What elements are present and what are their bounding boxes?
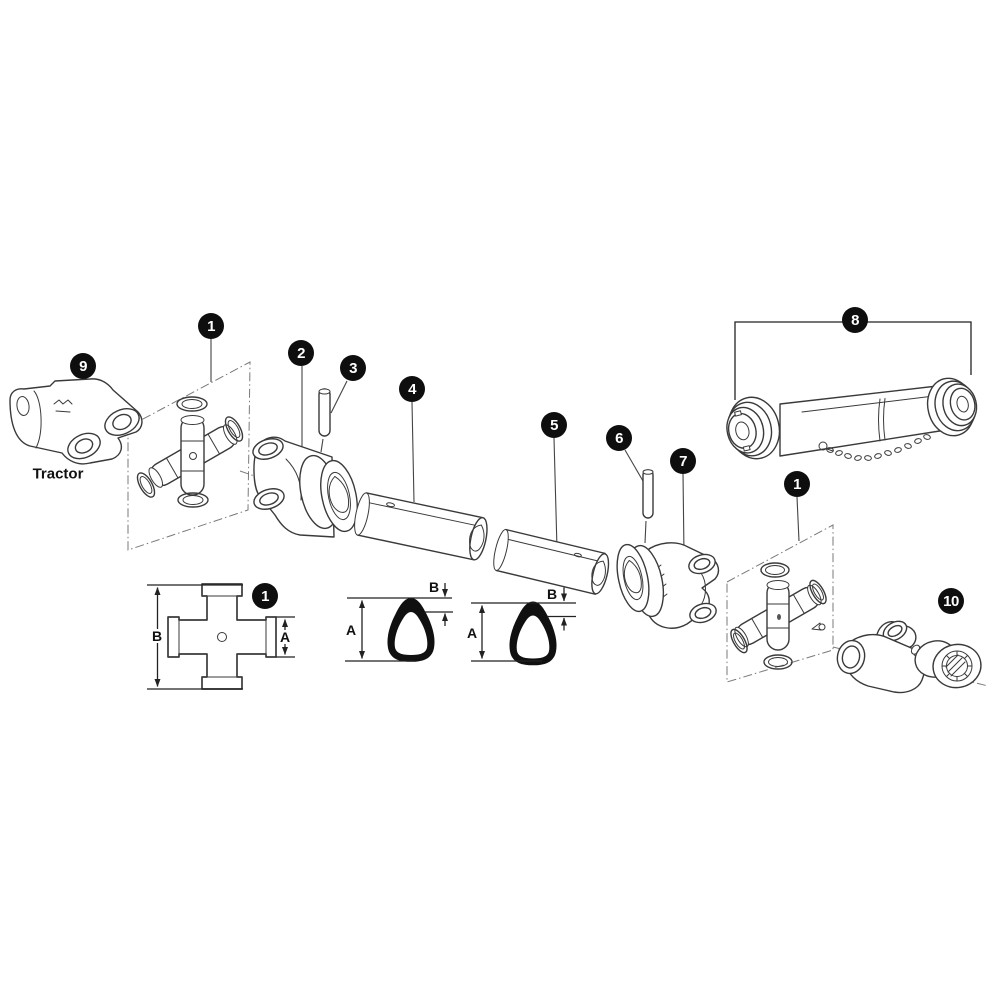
dim-label-cross-cup: A: [278, 630, 292, 644]
diagram-line-art: [0, 0, 1000, 1000]
dim-label-section2-wall: B: [545, 587, 559, 601]
callout-1-left-badge: 1: [198, 313, 224, 339]
guard-assembly-part8: [720, 322, 982, 465]
callout-3-badge: 3: [340, 355, 366, 381]
roll-pin-part3: [319, 389, 330, 436]
u-joint-kit-right-part1: [728, 563, 830, 669]
tractor-label: Tractor: [33, 467, 84, 482]
roll-pin-part6: [643, 470, 653, 518]
dim-label-cross-height: B: [150, 629, 164, 643]
callout-4-badge: 4: [399, 376, 425, 402]
callout-10-badge: 10: [938, 588, 964, 614]
outer-tube-part4: [352, 492, 491, 562]
callout-8-badge: 8: [842, 307, 868, 333]
tube-section-inner: [471, 588, 576, 666]
callout-1-cross-badge: 1: [252, 583, 278, 609]
callout-9-badge: 9: [70, 353, 96, 379]
callout-7-badge: 7: [670, 448, 696, 474]
guard-bell-left: [720, 392, 785, 465]
callout-5-badge: 5: [541, 412, 567, 438]
tube-yoke-part2: [250, 435, 363, 537]
callout-6-badge: 6: [606, 425, 632, 451]
exploded-parts-diagram: 9 1 2 3 4 5 6 7 8 1 10 1 Tractor B A A B…: [0, 0, 1000, 1000]
tractor-yoke-part9: [10, 379, 143, 464]
callout-1-right-badge: 1: [784, 471, 810, 497]
callout-2-badge: 2: [288, 340, 314, 366]
dim-label-section2-height: A: [465, 626, 479, 640]
implement-yoke-part10: [834, 617, 984, 692]
tube-yoke-part7: [612, 542, 719, 628]
dim-label-section1-wall: B: [427, 580, 441, 594]
u-joint-kit-left-part1: [134, 397, 246, 507]
dim-label-section1-height: A: [344, 623, 358, 637]
